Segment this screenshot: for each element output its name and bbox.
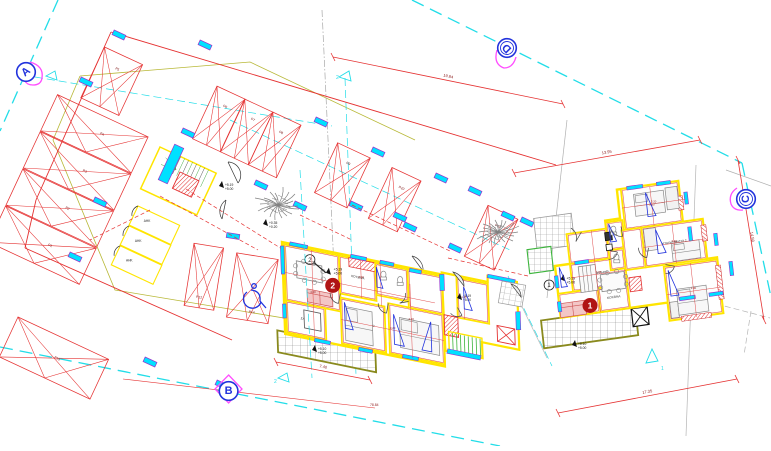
svg-text:3.20: 3.20 — [408, 317, 414, 321]
svg-text:AHK: AHK — [144, 219, 151, 223]
svg-text:+0.20: +0.20 — [269, 225, 278, 229]
svg-text:AHK: AHK — [126, 259, 133, 263]
svg-text:2: 2 — [336, 75, 339, 81]
svg-text:2: 2 — [330, 281, 335, 291]
svg-text:3.20: 3.20 — [390, 326, 396, 330]
svg-text:3.30: 3.30 — [671, 239, 677, 243]
svg-text:4.00: 4.00 — [310, 290, 316, 294]
svg-text:1: 1 — [588, 301, 593, 311]
svg-text:+5.00: +5.00 — [318, 351, 327, 355]
svg-text:3.30: 3.30 — [691, 286, 697, 290]
svg-text:7.65: 7.65 — [596, 270, 602, 274]
svg-text:2.02: 2.02 — [358, 275, 364, 279]
svg-text:C: C — [740, 195, 752, 203]
svg-text:78.84: 78.84 — [370, 403, 379, 407]
svg-text:AHK: AHK — [135, 239, 142, 243]
svg-text:B: B — [225, 385, 233, 397]
svg-text:3.20: 3.20 — [651, 200, 657, 204]
svg-text:+5.00: +5.00 — [225, 187, 234, 191]
svg-text:+5.00: +5.00 — [578, 346, 587, 350]
svg-text:+5.00: +5.00 — [334, 271, 343, 275]
svg-text:+5.00: +5.00 — [567, 280, 576, 284]
svg-text:1: 1 — [661, 366, 664, 372]
svg-text:2: 2 — [274, 379, 277, 385]
